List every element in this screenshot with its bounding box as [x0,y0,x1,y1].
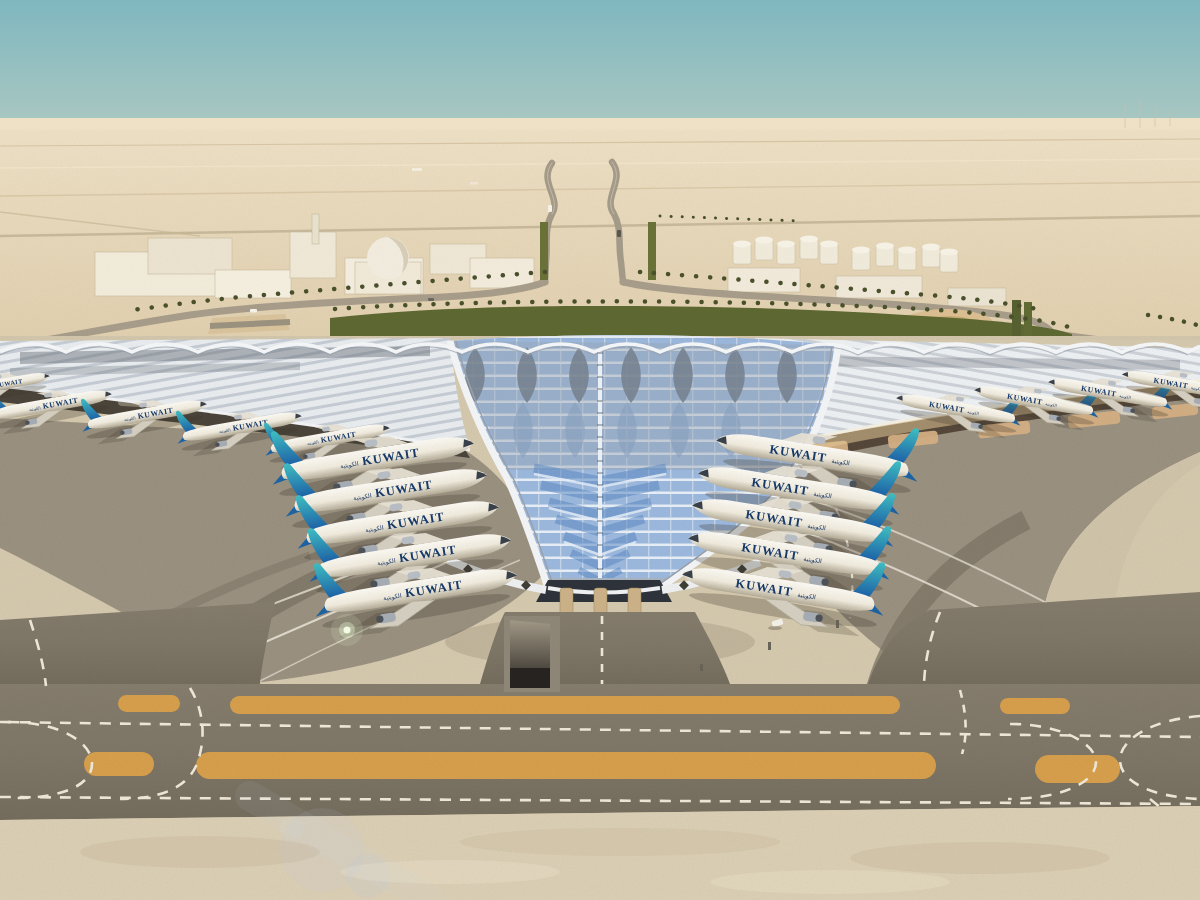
ground-texture [0,336,1200,900]
airport-rendering: الكويتية KUWAIT KUWAIT الكويتية [0,0,1200,900]
scene-canvas: الكويتية KUWAIT KUWAIT الكويتية [0,0,1200,900]
desert-texture [0,130,1200,340]
